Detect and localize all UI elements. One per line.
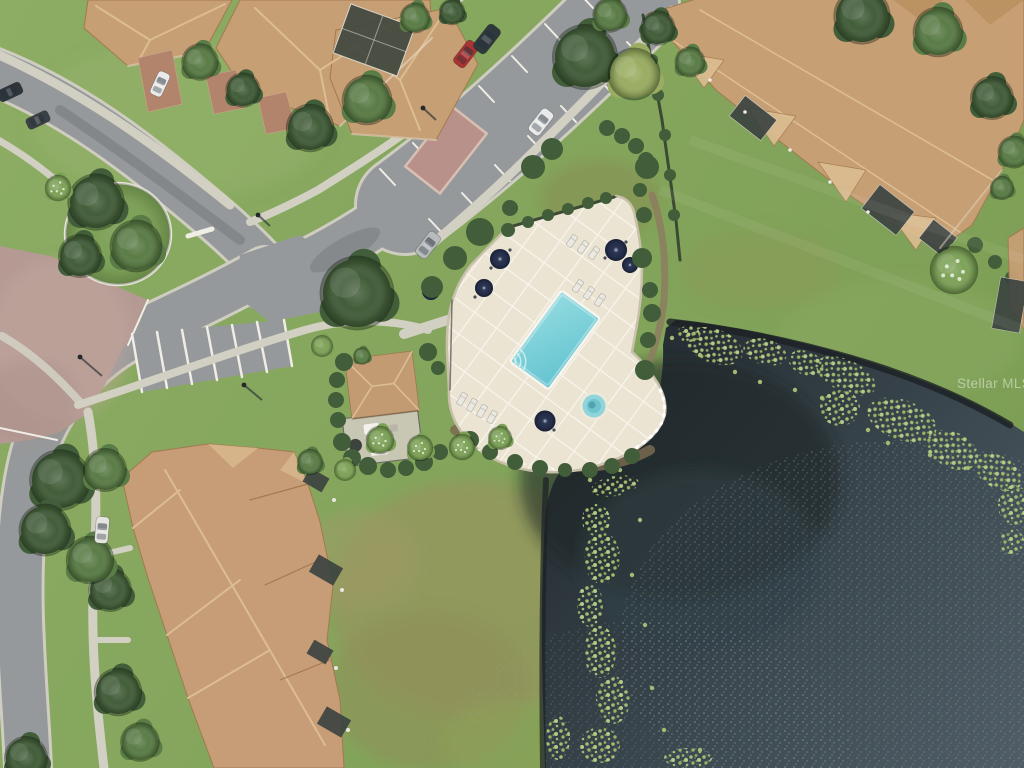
car-street-bottom [94, 516, 110, 544]
aerial-photo: Stellar MLS [0, 0, 1024, 768]
spa [580, 392, 608, 420]
shoreline-west [542, 480, 546, 768]
aerial-scene [0, 0, 1024, 768]
